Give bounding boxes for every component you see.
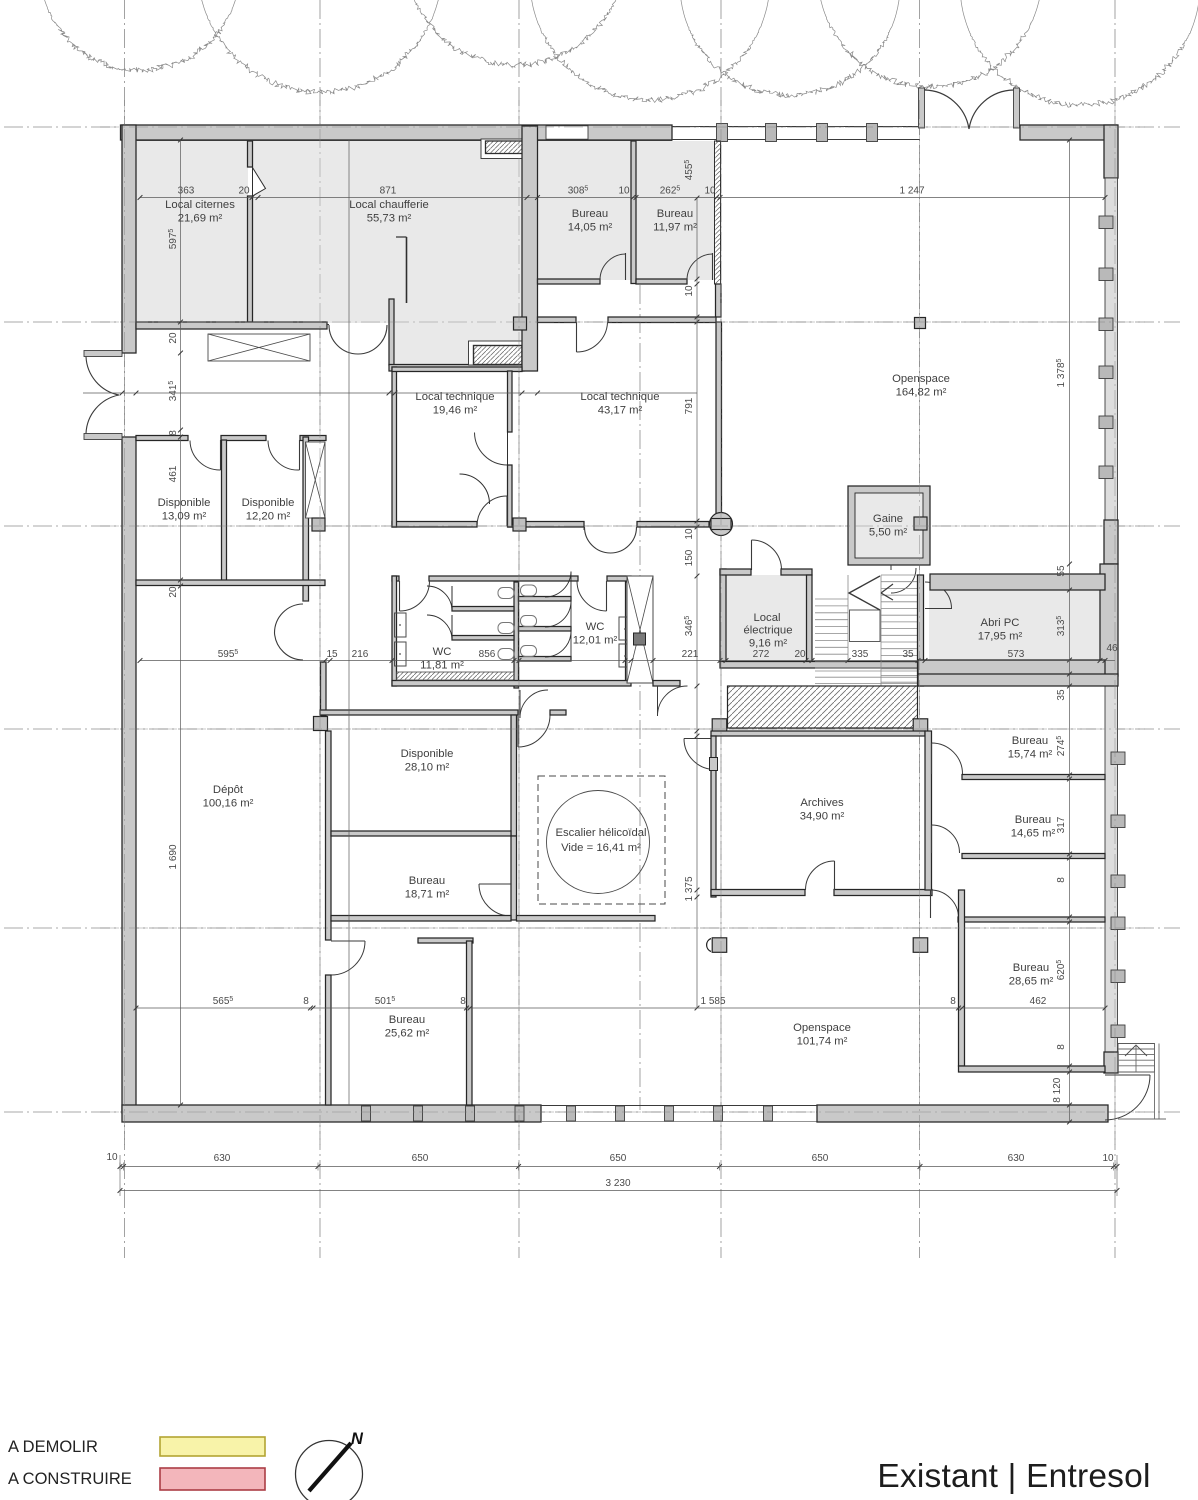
svg-text:100,16 m²: 100,16 m²	[203, 798, 254, 810]
svg-text:9,16 m²: 9,16 m²	[749, 638, 788, 650]
svg-text:WC: WC	[433, 646, 452, 658]
svg-text:650: 650	[412, 1153, 429, 1164]
svg-text:650: 650	[812, 1153, 829, 1164]
svg-text:Existant | Entresol: Existant | Entresol	[877, 1458, 1150, 1495]
svg-text:11,97 m²: 11,97 m²	[653, 222, 697, 234]
svg-text:Local: Local	[753, 612, 780, 624]
svg-text:14,65 m²: 14,65 m²	[1011, 828, 1056, 840]
svg-text:Bureau: Bureau	[409, 875, 445, 887]
svg-text:Disponible: Disponible	[242, 497, 295, 509]
svg-text:Dépôt: Dépôt	[213, 784, 244, 796]
svg-text:317: 317	[1056, 816, 1067, 833]
svg-text:462: 462	[1030, 996, 1047, 1007]
svg-text:1 375: 1 375	[684, 876, 695, 901]
svg-text:Local chaufferie: Local chaufferie	[349, 199, 429, 211]
svg-text:Disponible: Disponible	[401, 748, 454, 760]
svg-text:8: 8	[1056, 1044, 1067, 1050]
svg-text:8: 8	[303, 996, 309, 1007]
svg-text:34,90 m²: 34,90 m²	[800, 811, 845, 823]
svg-text:335: 335	[852, 649, 869, 660]
svg-text:10: 10	[106, 1152, 118, 1163]
svg-text:28,65 m²: 28,65 m²	[1009, 976, 1054, 988]
svg-text:5,50 m²: 5,50 m²	[869, 527, 908, 539]
svg-text:28,10 m²: 28,10 m²	[405, 762, 450, 774]
svg-text:N: N	[351, 1430, 364, 1448]
svg-text:Bureau: Bureau	[1015, 814, 1051, 826]
svg-text:A CONSTRUIRE: A CONSTRUIRE	[8, 1470, 132, 1488]
svg-text:15: 15	[326, 649, 338, 660]
svg-text:Openspace: Openspace	[892, 373, 950, 385]
svg-text:856: 856	[479, 649, 496, 660]
svg-text:101,74 m²: 101,74 m²	[797, 1036, 848, 1048]
svg-text:35: 35	[1056, 689, 1067, 701]
svg-text:55,73 m²: 55,73 m²	[367, 213, 412, 225]
svg-text:Bureau: Bureau	[572, 208, 608, 220]
svg-text:8: 8	[950, 996, 956, 1007]
svg-text:10: 10	[684, 285, 695, 297]
svg-text:8: 8	[1056, 877, 1067, 883]
svg-text:272: 272	[753, 649, 770, 660]
svg-text:10: 10	[1102, 1153, 1114, 1164]
svg-text:Bureau: Bureau	[389, 1014, 425, 1026]
svg-text:Escalier hélicoïdal: Escalier hélicoïdal	[555, 827, 646, 839]
svg-text:25,62 m²: 25,62 m²	[385, 1028, 430, 1040]
svg-text:Local technique: Local technique	[415, 391, 494, 403]
svg-text:221: 221	[682, 649, 699, 660]
svg-text:Gaine: Gaine	[873, 513, 903, 525]
svg-text:18,71 m²: 18,71 m²	[405, 889, 450, 901]
svg-text:1 585: 1 585	[700, 996, 725, 1007]
svg-text:630: 630	[214, 1153, 231, 1164]
svg-text:1 247: 1 247	[899, 186, 924, 197]
svg-text:électrique: électrique	[744, 625, 793, 637]
svg-text:Local technique: Local technique	[580, 391, 659, 403]
svg-text:Bureau: Bureau	[657, 208, 693, 220]
svg-text:43,17 m²: 43,17 m²	[598, 405, 643, 417]
svg-text:8: 8	[168, 430, 179, 436]
svg-text:871: 871	[380, 186, 397, 197]
svg-text:3 230: 3 230	[605, 1178, 630, 1189]
svg-text:461: 461	[168, 465, 179, 482]
svg-text:A DEMOLIR: A DEMOLIR	[8, 1438, 98, 1456]
svg-text:46: 46	[1106, 643, 1118, 654]
svg-text:1 690: 1 690	[168, 844, 179, 869]
svg-text:Vide = 16,41 m²: Vide = 16,41 m²	[561, 842, 641, 854]
svg-text:630: 630	[1008, 1153, 1025, 1164]
svg-text:120: 120	[1052, 1077, 1063, 1094]
svg-text:Abri PC: Abri PC	[981, 617, 1020, 629]
svg-text:8: 8	[1052, 1097, 1063, 1103]
svg-text:13,09 m²: 13,09 m²	[162, 511, 207, 523]
svg-text:11,81 m²: 11,81 m²	[420, 660, 464, 672]
svg-text:15,74 m²: 15,74 m²	[1008, 749, 1053, 761]
svg-text:10: 10	[704, 186, 716, 197]
svg-text:14,05 m²: 14,05 m²	[568, 222, 613, 234]
svg-text:650: 650	[610, 1153, 627, 1164]
svg-text:150: 150	[684, 549, 695, 566]
svg-text:55: 55	[1056, 565, 1067, 577]
svg-text:21,69 m²: 21,69 m²	[178, 213, 223, 225]
svg-text:573: 573	[1008, 649, 1025, 660]
svg-text:10: 10	[684, 528, 695, 540]
svg-text:12,20 m²: 12,20 m²	[246, 511, 291, 523]
svg-text:20: 20	[168, 586, 179, 598]
svg-text:17,95 m²: 17,95 m²	[978, 631, 1023, 643]
svg-text:1 3785: 1 3785	[1056, 358, 1067, 387]
svg-text:WC: WC	[586, 621, 605, 633]
svg-text:12,01 m²: 12,01 m²	[573, 635, 618, 647]
svg-text:791: 791	[684, 397, 695, 414]
svg-text:19,46 m²: 19,46 m²	[433, 405, 478, 417]
svg-text:8: 8	[460, 996, 466, 1007]
svg-text:20: 20	[794, 649, 806, 660]
svg-text:164,82 m²: 164,82 m²	[896, 387, 947, 399]
svg-text:216: 216	[352, 649, 369, 660]
svg-text:10: 10	[618, 186, 630, 197]
svg-text:Openspace: Openspace	[793, 1022, 851, 1034]
svg-text:Disponible: Disponible	[158, 497, 211, 509]
svg-text:Bureau: Bureau	[1012, 735, 1048, 747]
svg-text:20: 20	[238, 186, 250, 197]
svg-text:Bureau: Bureau	[1013, 962, 1049, 974]
svg-text:Local citernes: Local citernes	[165, 199, 235, 211]
svg-text:20: 20	[168, 332, 179, 344]
svg-text:35: 35	[902, 649, 914, 660]
svg-text:Archives: Archives	[800, 797, 844, 809]
